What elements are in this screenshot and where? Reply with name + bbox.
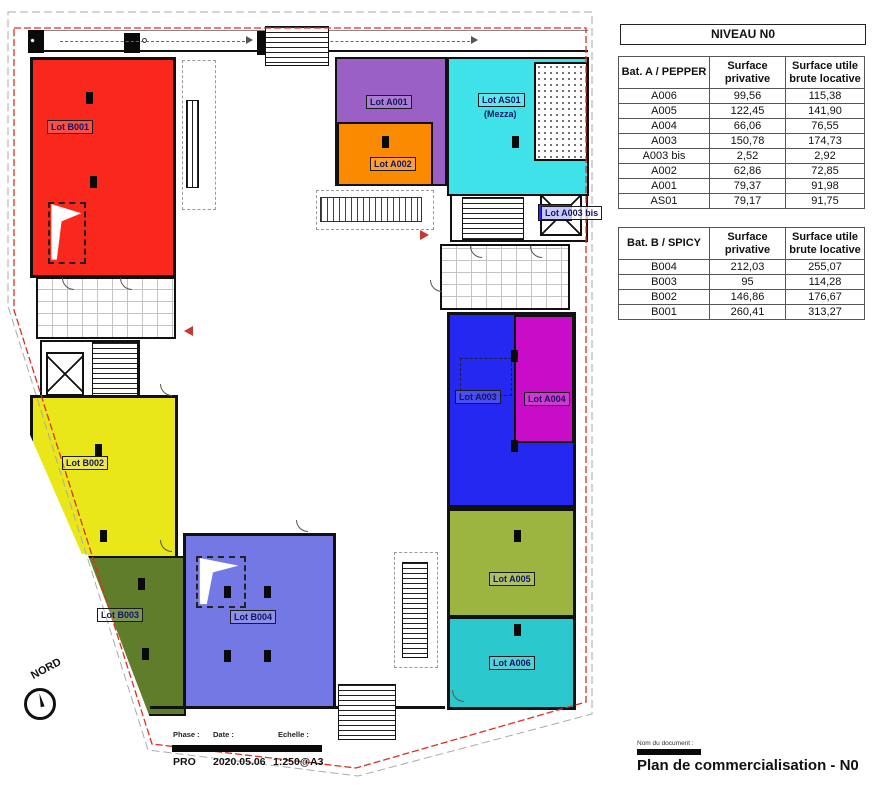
- column: [86, 92, 93, 104]
- column: [142, 648, 149, 660]
- cell: 260,41: [710, 305, 786, 320]
- phase-value: PRO: [173, 756, 196, 768]
- lot-a002-zone: [337, 122, 433, 186]
- cell: 2,52: [710, 149, 786, 164]
- column: [514, 530, 521, 542]
- cell: B004: [619, 260, 710, 275]
- lot-a004-zone: [514, 315, 574, 443]
- cell: 122,45: [710, 104, 786, 119]
- date-label: Date :: [213, 730, 234, 739]
- column: [100, 530, 107, 542]
- cell: 212,03: [710, 260, 786, 275]
- lot-a005-label: Lot A005: [489, 572, 535, 586]
- column: [512, 136, 519, 148]
- column: [514, 624, 521, 636]
- cell: 99,56: [710, 89, 786, 104]
- lot-a003bis-label: Lot A003 bis: [541, 206, 602, 220]
- elevator-b: [46, 352, 84, 396]
- stairs-a: [462, 197, 524, 240]
- cell: A003 bis: [619, 149, 710, 164]
- document-name-bar: [637, 749, 701, 755]
- cell: A004: [619, 119, 710, 134]
- survey-point: [30, 38, 35, 43]
- table-row: A003 bis2,522,92: [619, 149, 865, 164]
- niveau-title: NIVEAU N0: [620, 24, 866, 45]
- table-row: AS0179,1791,75: [619, 194, 865, 209]
- cell: 91,75: [786, 194, 865, 209]
- lot-as01-label: Lot AS01: [478, 93, 525, 107]
- cell: B001: [619, 305, 710, 320]
- table-bat-a: Bat. A / PEPPER Surface privative Surfac…: [618, 56, 865, 209]
- table-a-header: Bat. A / PEPPER Surface privative Surfac…: [619, 57, 865, 89]
- cell: A006: [619, 89, 710, 104]
- column: [511, 350, 518, 362]
- cell: 91,98: [786, 179, 865, 194]
- page: Lot B001 Lot B002 Lot B003 Lot B004 Lot …: [0, 0, 885, 785]
- cell: 62,86: [710, 164, 786, 179]
- cell: 313,27: [786, 305, 865, 320]
- circulation-arrow: [60, 41, 245, 42]
- lot-b003-label: Lot B003: [97, 608, 143, 622]
- wall-block: [124, 33, 140, 53]
- table-b-header: Bat. B / SPICY Surface privative Surface…: [619, 228, 865, 260]
- cell: A002: [619, 164, 710, 179]
- table-row: B00395114,28: [619, 275, 865, 290]
- document-title: Plan de commercialisation - N0: [637, 757, 859, 774]
- cell: AS01: [619, 194, 710, 209]
- cell: 115,38: [786, 89, 865, 104]
- entrance-marker: [420, 230, 429, 240]
- header-cell: Surface utile brute locative: [786, 57, 865, 89]
- table-row: A005122,45141,90: [619, 104, 865, 119]
- column: [138, 578, 145, 590]
- external-stairs: [338, 684, 396, 740]
- column: [224, 650, 231, 662]
- lot-b004-label: Lot B004: [230, 610, 276, 624]
- cell: A003: [619, 134, 710, 149]
- lot-as01-mezza-label: (Mezza): [484, 109, 517, 119]
- cell: 76,55: [786, 119, 865, 134]
- lot-b002-label: Lot B002: [62, 456, 108, 470]
- scale-value: 1:250@A3: [273, 756, 324, 768]
- document-name-label: Nom du document :: [637, 740, 694, 747]
- column: [264, 586, 271, 598]
- door-arc: [296, 520, 308, 532]
- header-cell: Bat. B / SPICY: [619, 228, 710, 260]
- column: [95, 444, 102, 456]
- cell: 150,78: [710, 134, 786, 149]
- entrance-marker: [184, 326, 193, 336]
- arrow-head-icon: [471, 36, 478, 44]
- column: [511, 440, 518, 452]
- table-row: A00262,8672,85: [619, 164, 865, 179]
- lot-a002-label: Lot A002: [370, 157, 416, 171]
- cell: A005: [619, 104, 710, 119]
- phase-label: Phase :: [173, 730, 200, 739]
- table-row: A003150,78174,73: [619, 134, 865, 149]
- table-row: B002146,86176,67: [619, 290, 865, 305]
- cell: 66,06: [710, 119, 786, 134]
- wc-block-b: [36, 277, 176, 339]
- void-hatch: [534, 62, 588, 161]
- cell: A001: [619, 179, 710, 194]
- cell: B002: [619, 290, 710, 305]
- column: [264, 650, 271, 662]
- cell: 141,90: [786, 104, 865, 119]
- grille: [186, 100, 199, 188]
- cell: 79,37: [710, 179, 786, 194]
- wc-block-a: [440, 244, 570, 310]
- table-row: B004212,03255,07: [619, 260, 865, 275]
- lot-a004-label: Lot A004: [524, 392, 570, 406]
- titleblock-bar: [172, 745, 322, 752]
- cell: 2,92: [786, 149, 865, 164]
- cell: B003: [619, 275, 710, 290]
- table-row: A00179,3791,98: [619, 179, 865, 194]
- courtyard-stairs: [402, 562, 428, 658]
- column: [382, 136, 389, 148]
- arrow-head-icon: [246, 36, 253, 44]
- cell: 72,85: [786, 164, 865, 179]
- grille: [265, 26, 329, 66]
- cell: 255,07: [786, 260, 865, 275]
- header-cell: Bat. A / PEPPER: [619, 57, 710, 89]
- cell: 174,73: [786, 134, 865, 149]
- lot-a005-zone: [447, 508, 576, 618]
- cell: 176,67: [786, 290, 865, 305]
- cell: 79,17: [710, 194, 786, 209]
- compass-needle-icon: [37, 693, 44, 708]
- cell: 114,28: [786, 275, 865, 290]
- stairs-b: [92, 342, 138, 396]
- date-value: 2020.05.06: [213, 756, 266, 768]
- lot-b001-label: Lot B001: [47, 120, 93, 134]
- cell: 146,86: [710, 290, 786, 305]
- lot-a003-label: Lot A003: [455, 390, 501, 404]
- door-arc: [430, 280, 442, 292]
- cell: 95: [710, 275, 786, 290]
- header-cell: Surface privative: [710, 228, 786, 260]
- header-cell: Surface utile brute locative: [786, 228, 865, 260]
- scale-label: Echelle :: [278, 730, 309, 739]
- table-row: A00466,0676,55: [619, 119, 865, 134]
- header-cell: Surface privative: [710, 57, 786, 89]
- table-bat-b: Bat. B / SPICY Surface privative Surface…: [618, 227, 865, 320]
- north-compass-icon: [24, 688, 56, 720]
- lot-a001-label: Lot A001: [366, 95, 412, 109]
- column: [90, 176, 97, 188]
- bike-racks: [320, 197, 422, 222]
- walkway-edge: [150, 706, 445, 709]
- table-row: A00699,56115,38: [619, 89, 865, 104]
- lot-a006-label: Lot A006: [489, 656, 535, 670]
- table-row: B001260,41313,27: [619, 305, 865, 320]
